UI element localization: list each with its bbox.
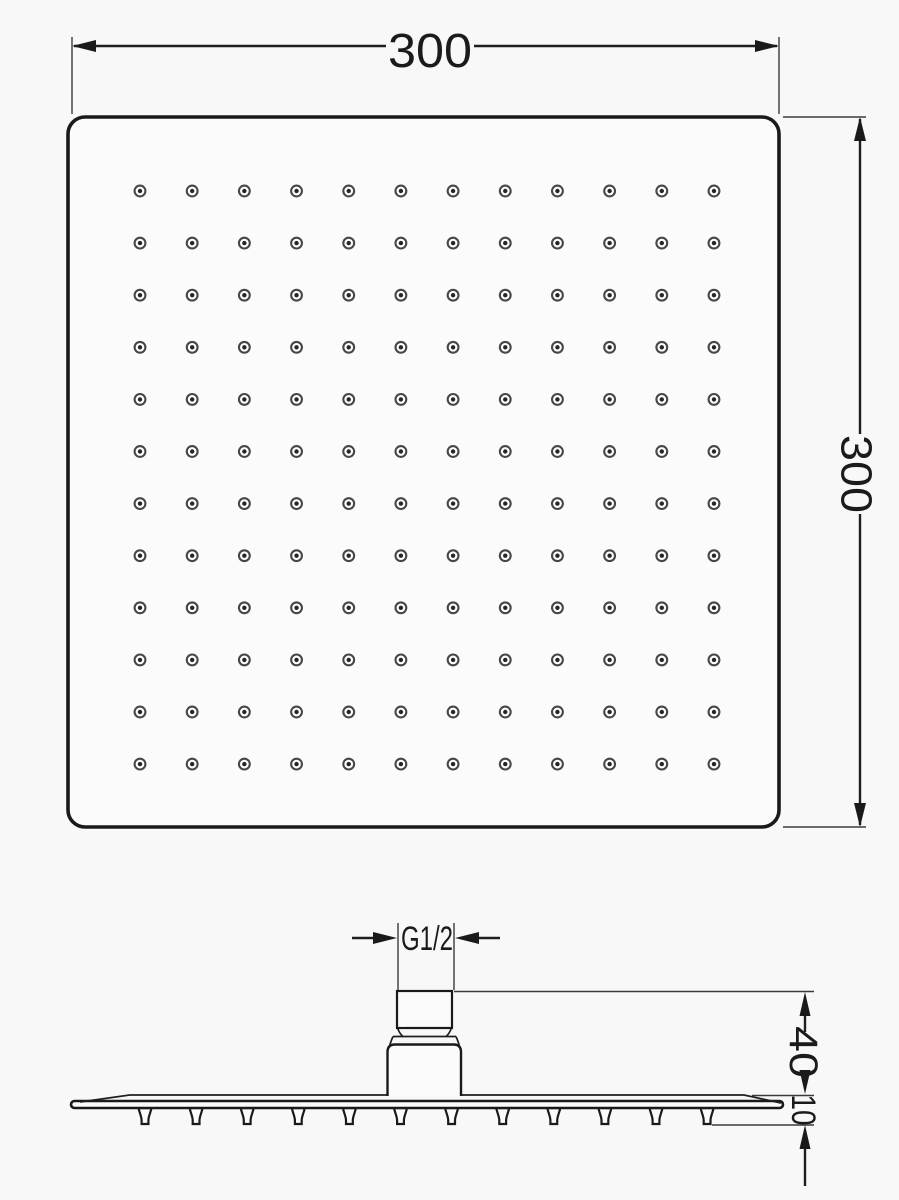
spray-nozzle-row — [139, 1108, 714, 1124]
nozzle-dot-center — [399, 241, 403, 245]
nozzle-dot-center — [712, 397, 716, 401]
connector-height-label: 40 — [781, 1026, 825, 1078]
nozzle-dot-center — [138, 345, 142, 349]
nozzle-dot-center — [347, 554, 351, 558]
nozzle-dot-center — [347, 293, 351, 297]
nozzle-dot-center — [399, 658, 403, 662]
nozzle-dot-center — [294, 501, 298, 505]
nozzle-dot-center — [555, 241, 559, 245]
nozzle-dot-center — [399, 397, 403, 401]
nozzle-dot-center — [242, 449, 246, 453]
nozzle-dot-center — [503, 293, 507, 297]
nozzle-dot-center — [607, 449, 611, 453]
nozzle-dot-center — [660, 241, 664, 245]
nozzle-dot-center — [660, 449, 664, 453]
nozzle-dot-center — [712, 189, 716, 193]
nozzle-dot-center — [555, 710, 559, 714]
dimension-right-height: 300 — [783, 117, 881, 827]
nozzle-dot-center — [294, 345, 298, 349]
nozzle-dot-center — [138, 189, 142, 193]
nozzle-dot-center — [555, 189, 559, 193]
nozzle-dot-center — [399, 501, 403, 505]
nozzle-dot-center — [347, 762, 351, 766]
nozzle-dot-center — [660, 554, 664, 558]
spray-nozzle — [445, 1108, 458, 1124]
nozzle-dot-center — [347, 710, 351, 714]
nozzle-dot-center — [399, 606, 403, 610]
nozzle-dot-center — [555, 762, 559, 766]
nozzle-dot-center — [190, 241, 194, 245]
nozzle-dot-center — [190, 293, 194, 297]
nozzle-dot-center — [242, 345, 246, 349]
nozzle-dot-center — [347, 501, 351, 505]
technical-drawing-page: 300 300 G1/2 — [0, 0, 899, 1200]
nozzle-dot-center — [503, 606, 507, 610]
nozzle-dot-center — [294, 554, 298, 558]
spray-nozzle — [394, 1108, 407, 1124]
plate-thickness-label: 10 — [784, 1095, 822, 1126]
nozzle-dot-center — [712, 710, 716, 714]
arrowhead-right-icon — [373, 932, 397, 944]
arrowhead-right-icon — [755, 40, 779, 52]
nozzle-dot-center — [190, 189, 194, 193]
nozzle-dot-center — [347, 241, 351, 245]
nozzle-dot-center — [607, 501, 611, 505]
connector-neck-left — [398, 1028, 404, 1037]
spray-nozzle — [190, 1108, 203, 1124]
nozzle-dot-center — [712, 449, 716, 453]
nozzle-dot-center — [242, 658, 246, 662]
nozzle-dot-center — [607, 241, 611, 245]
nozzle-dot-center — [138, 449, 142, 453]
nozzle-dot-center — [347, 345, 351, 349]
spray-nozzle — [139, 1108, 152, 1124]
arrowhead-up-icon — [854, 117, 866, 141]
nozzle-dot-center — [607, 762, 611, 766]
spray-nozzle — [496, 1108, 509, 1124]
nozzle-dot-center — [607, 345, 611, 349]
spray-nozzle — [650, 1108, 663, 1124]
nozzle-dot-center — [347, 658, 351, 662]
spray-nozzle — [241, 1108, 254, 1124]
nozzle-dot-center — [660, 397, 664, 401]
nozzle-dot-center — [399, 710, 403, 714]
nozzle-dot-center — [712, 554, 716, 558]
nozzle-dot-center — [660, 189, 664, 193]
nozzle-dot-center — [242, 397, 246, 401]
nozzle-dot-center — [555, 501, 559, 505]
nozzle-dot-center — [607, 189, 611, 193]
nozzle-dot-center — [451, 345, 455, 349]
nozzle-dot-center — [503, 762, 507, 766]
nozzle-dot-center — [138, 658, 142, 662]
nozzle-dot-center — [451, 397, 455, 401]
nozzle-dot-center — [451, 658, 455, 662]
nozzle-dot-center — [503, 501, 507, 505]
nozzle-dot-center — [555, 554, 559, 558]
top-width-label: 300 — [388, 25, 472, 78]
nozzle-dot-center — [712, 241, 716, 245]
nozzle-dot-center — [138, 710, 142, 714]
nozzle-dot-center — [451, 762, 455, 766]
nozzle-dot-center — [503, 449, 507, 453]
nozzle-dot-center — [190, 397, 194, 401]
nozzle-dot-center — [190, 554, 194, 558]
nozzle-dot-center — [660, 606, 664, 610]
nozzle-dot-center — [712, 345, 716, 349]
nozzle-dot-center — [138, 241, 142, 245]
nozzle-dot-center — [555, 449, 559, 453]
connector-neck-right — [446, 1028, 452, 1037]
spray-nozzle — [343, 1108, 356, 1124]
dimension-thread: G1/2 — [352, 920, 500, 990]
nozzle-dot-center — [138, 606, 142, 610]
nozzle-dot-center — [712, 501, 716, 505]
nozzle-dot-center — [347, 449, 351, 453]
nozzle-dot-center — [138, 397, 142, 401]
nozzle-dot-center — [451, 449, 455, 453]
nozzle-dot-center — [660, 293, 664, 297]
nozzle-dot-center — [190, 449, 194, 453]
nozzle-dot-center — [660, 501, 664, 505]
nozzle-dot-center — [294, 606, 298, 610]
thread-cylinder — [397, 991, 452, 1028]
nozzle-dot-center — [503, 397, 507, 401]
nozzle-dot-center — [294, 710, 298, 714]
nozzle-dot-center — [451, 241, 455, 245]
nozzle-dot-center — [712, 658, 716, 662]
spray-nozzle — [598, 1108, 611, 1124]
nozzle-dot-center — [555, 397, 559, 401]
nozzle-dot-center — [138, 554, 142, 558]
nozzle-dot-center — [347, 606, 351, 610]
nozzle-dot-center — [660, 345, 664, 349]
nozzle-dot-center — [242, 501, 246, 505]
nozzle-dot-center — [190, 606, 194, 610]
nozzle-dot-center — [190, 658, 194, 662]
nozzle-dot-center — [190, 762, 194, 766]
nozzle-dot-center — [294, 762, 298, 766]
nozzle-dot-center — [555, 293, 559, 297]
nozzle-dot-center — [555, 658, 559, 662]
dimension-top-width: 300 — [72, 25, 779, 114]
nozzle-dot-center — [399, 554, 403, 558]
nozzle-dot-center — [451, 293, 455, 297]
nozzle-dot-center — [190, 710, 194, 714]
nozzle-dot-center — [399, 293, 403, 297]
nozzle-dot-center — [399, 449, 403, 453]
nozzle-dot-center — [451, 501, 455, 505]
side-view: G1/2 40 10 — [71, 920, 825, 1186]
nozzle-dot-center — [294, 449, 298, 453]
nozzle-dot-center — [712, 606, 716, 610]
nozzle-dot-center — [242, 554, 246, 558]
nozzle-dot-center — [503, 345, 507, 349]
arrowhead-down-icon — [854, 803, 866, 827]
nozzle-dot-center — [503, 189, 507, 193]
nozzle-dot-center — [660, 710, 664, 714]
nozzle-dot-center — [294, 658, 298, 662]
nozzle-dot-center — [607, 710, 611, 714]
nozzle-dot-center — [138, 501, 142, 505]
nozzle-dot-center — [607, 658, 611, 662]
nozzle-dot-center — [294, 189, 298, 193]
spray-nozzle — [292, 1108, 305, 1124]
nozzle-dot-center — [607, 397, 611, 401]
arrowhead-up-icon — [800, 1125, 811, 1149]
nozzle-dot-center — [555, 345, 559, 349]
shower-head-technical-drawing: 300 300 G1/2 — [0, 0, 899, 1200]
plate-profile — [71, 1101, 783, 1108]
arrowhead-up-icon — [800, 992, 811, 1016]
nozzle-dot-center — [242, 293, 246, 297]
nozzle-dot-center — [347, 189, 351, 193]
connector-base — [388, 1045, 462, 1097]
arrowhead-left-icon — [72, 40, 96, 52]
nozzle-dot-center — [190, 345, 194, 349]
nozzle-dot-center — [451, 554, 455, 558]
nozzle-dot-center — [294, 397, 298, 401]
nozzle-dot-center — [503, 710, 507, 714]
nozzle-dot-center — [607, 554, 611, 558]
nozzle-dot-center — [451, 189, 455, 193]
nozzle-dot-center — [399, 345, 403, 349]
spray-nozzle — [547, 1108, 560, 1124]
nozzle-dot-center — [242, 606, 246, 610]
arrowhead-left-icon — [455, 932, 479, 944]
shower-plate-outline — [68, 117, 779, 827]
nozzle-dot-center — [138, 293, 142, 297]
nozzle-dot-center — [399, 189, 403, 193]
nozzle-dot-center — [712, 762, 716, 766]
nozzle-dot-center — [242, 710, 246, 714]
top-view: 300 300 — [68, 25, 881, 827]
nozzle-dot-center — [190, 501, 194, 505]
nozzle-dot-center — [660, 658, 664, 662]
nozzle-dot-center — [242, 241, 246, 245]
nozzle-dot-center — [607, 606, 611, 610]
nozzle-dot-center — [294, 293, 298, 297]
nozzle-dot-center — [451, 606, 455, 610]
nozzle-dot-center — [294, 241, 298, 245]
nozzle-dot-center — [399, 762, 403, 766]
nozzle-dot-center — [503, 241, 507, 245]
thread-connector — [388, 991, 462, 1096]
dimension-connector-height: 40 — [454, 992, 825, 1095]
nozzle-dot-center — [660, 762, 664, 766]
nozzle-dot-center — [503, 554, 507, 558]
nozzle-dot-center — [347, 397, 351, 401]
nozzle-dot-center — [242, 762, 246, 766]
nozzle-dot-center — [503, 658, 507, 662]
nozzle-dot-center — [712, 293, 716, 297]
nozzle-dot-center — [607, 293, 611, 297]
nozzle-dot-center — [138, 762, 142, 766]
thread-label: G1/2 — [401, 920, 453, 958]
nozzle-dot-center — [555, 606, 559, 610]
right-height-label: 300 — [832, 435, 881, 513]
spray-nozzle — [701, 1108, 714, 1124]
nozzle-dot-center — [451, 710, 455, 714]
nozzle-dot-center — [242, 189, 246, 193]
